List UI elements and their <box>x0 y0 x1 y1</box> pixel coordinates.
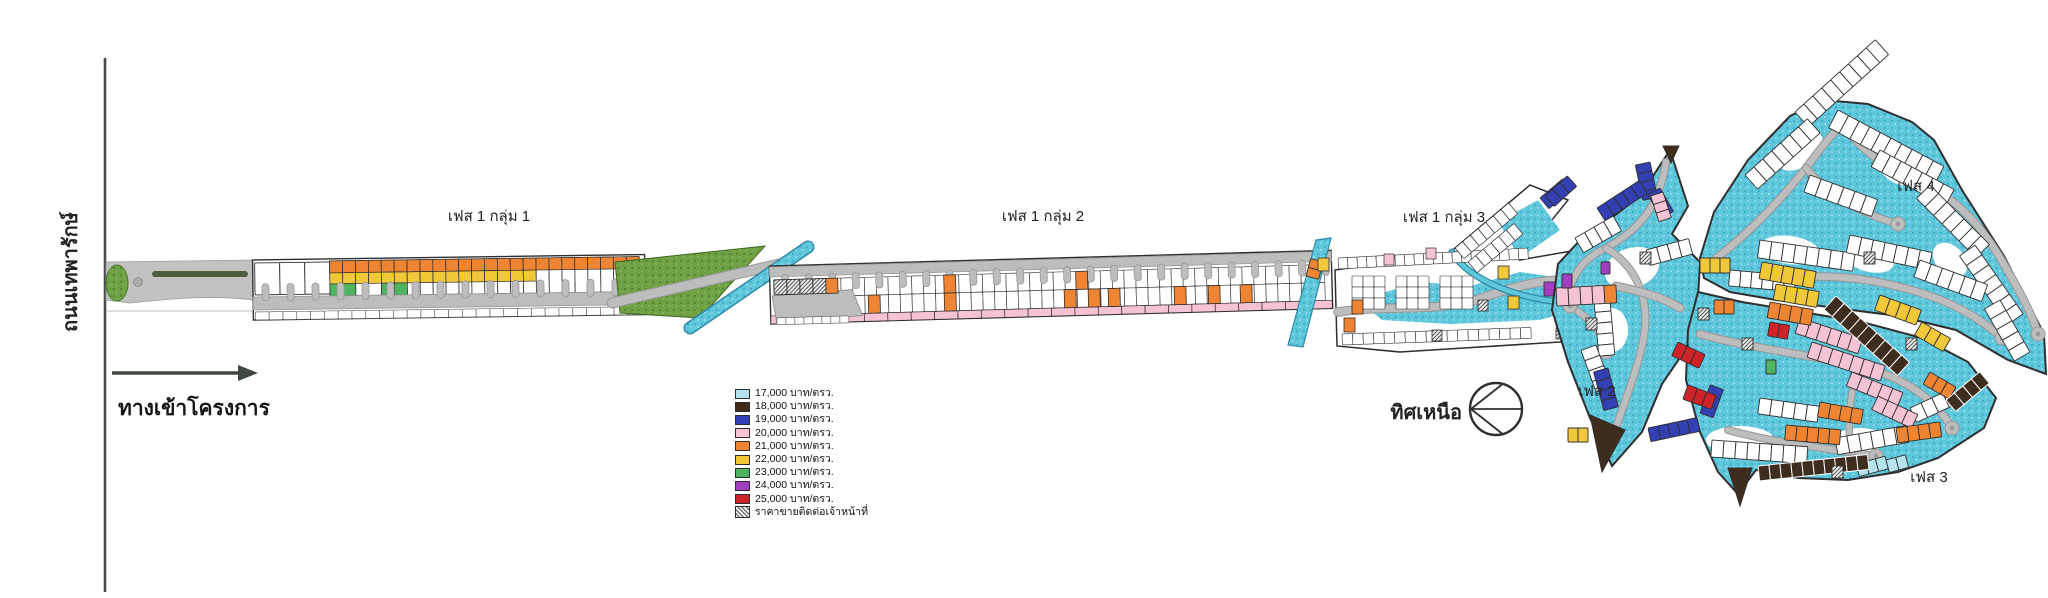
phase-2-3-4-cluster <box>1545 40 2046 506</box>
legend-swatch <box>735 402 750 412</box>
legend-contact-item: ราคาขายติดต่อเจ้าหน้าที่ <box>735 506 868 519</box>
phase-1-group-3-label: เฟส 1 กลุ่ม 3 <box>1344 205 1544 229</box>
phase-1-group-2-label: เฟส 1 กลุ่ม 2 <box>943 204 1143 228</box>
master-plan: ถนนเทพารักษ์ ทางเข้าโครงการ เฟส 1 กลุ่ม … <box>0 0 2048 598</box>
main-road-and-entrance <box>105 58 614 592</box>
phase-3-label: เฟส 3 <box>1879 465 1979 489</box>
legend-swatch <box>735 455 750 465</box>
legend-swatch <box>735 441 750 451</box>
legend-item: 25,000 บาท/ตรว. <box>735 493 868 506</box>
legend-hatched-swatch <box>735 506 750 518</box>
legend-item: 23,000 บาท/ตรว. <box>735 466 868 479</box>
north-compass-icon <box>1470 383 1522 435</box>
price-legend: 17,000 บาท/ตรว. 18,000 บาท/ตรว. 19,000 บ… <box>735 387 868 519</box>
phase1-group2-strip <box>769 250 1332 325</box>
road-name-label: ถนนเทพารักษ์ <box>54 197 86 347</box>
phase1-group1-strip <box>253 255 646 320</box>
legend-item: 19,000 บาท/ตรว. <box>735 413 868 426</box>
phase-4-label: เฟส 4 <box>1866 174 1966 198</box>
north-label: ทิศเหนือ <box>1362 396 1462 428</box>
legend-swatch <box>735 415 750 425</box>
phase-1-group-1-label: เฟส 1 กลุ่ม 1 <box>389 204 589 228</box>
legend-swatch <box>735 481 750 491</box>
phase-2-label: เฟส 2 <box>1547 379 1647 403</box>
legend-swatch <box>735 468 750 478</box>
legend-item: 21,000 บาท/ตรว. <box>735 440 868 453</box>
legend-item: 17,000 บาท/ตรว. <box>735 387 868 400</box>
legend-item: 18,000 บาท/ตรว. <box>735 400 868 413</box>
legend-swatch <box>735 389 750 399</box>
legend-swatch <box>735 428 750 438</box>
site-plan-canvas <box>0 0 2048 598</box>
legend-item: 24,000 บาท/ตรว. <box>735 479 868 492</box>
legend-swatch <box>735 494 750 504</box>
entrance-arrow <box>112 365 258 381</box>
legend-item: 20,000 บาท/ตรว. <box>735 427 868 440</box>
entrance-label: ทางเข้าโครงการ <box>118 392 270 425</box>
legend-item: 22,000 บาท/ตรว. <box>735 453 868 466</box>
